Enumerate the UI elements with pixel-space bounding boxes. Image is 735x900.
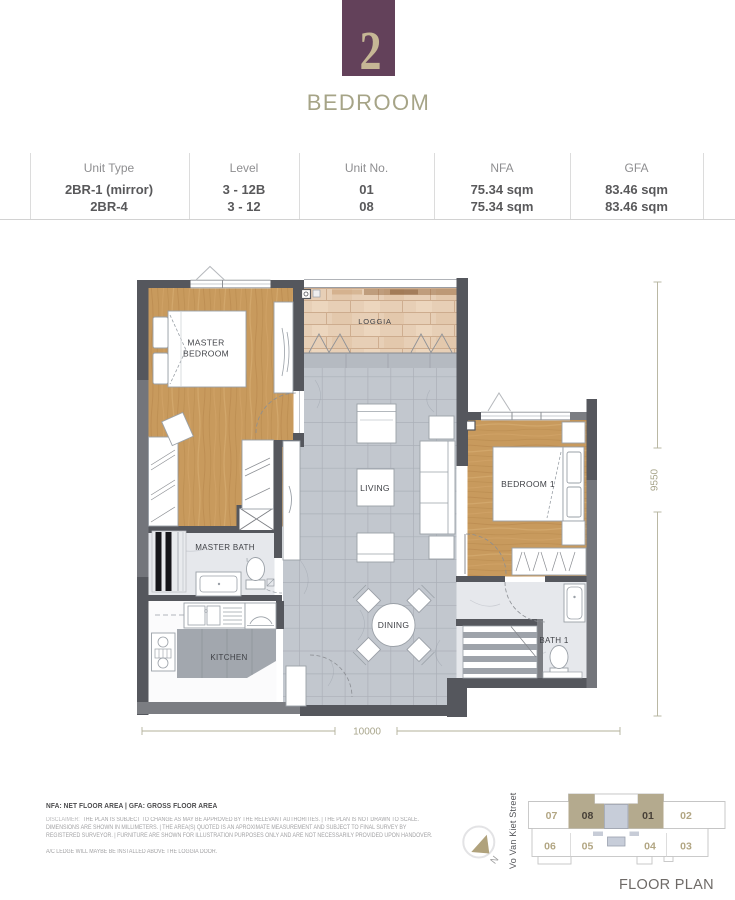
svg-text:02: 02 bbox=[680, 810, 692, 822]
svg-text:BATH 1: BATH 1 bbox=[539, 636, 568, 645]
svg-text:9550: 9550 bbox=[650, 468, 661, 491]
svg-text:07: 07 bbox=[546, 810, 558, 822]
svg-text:03: 03 bbox=[680, 841, 692, 853]
svg-text:10000: 10000 bbox=[353, 727, 381, 738]
svg-text:01: 01 bbox=[642, 810, 654, 822]
svg-text:DINING: DINING bbox=[378, 620, 410, 630]
svg-text:05: 05 bbox=[582, 841, 594, 853]
svg-text:04: 04 bbox=[644, 841, 656, 853]
svg-text:LIVING: LIVING bbox=[360, 483, 390, 493]
svg-text:BEDROOM 1: BEDROOM 1 bbox=[501, 479, 555, 489]
svg-text:06: 06 bbox=[544, 841, 556, 853]
svg-text:BEDROOM: BEDROOM bbox=[183, 349, 229, 359]
svg-text:N: N bbox=[488, 854, 501, 866]
svg-text:LOGGIA: LOGGIA bbox=[358, 317, 392, 326]
svg-text:MASTER BATH: MASTER BATH bbox=[195, 543, 255, 552]
svg-text:MASTER: MASTER bbox=[187, 338, 224, 348]
svg-text:08: 08 bbox=[582, 810, 594, 822]
svg-text:KITCHEN: KITCHEN bbox=[210, 653, 247, 662]
